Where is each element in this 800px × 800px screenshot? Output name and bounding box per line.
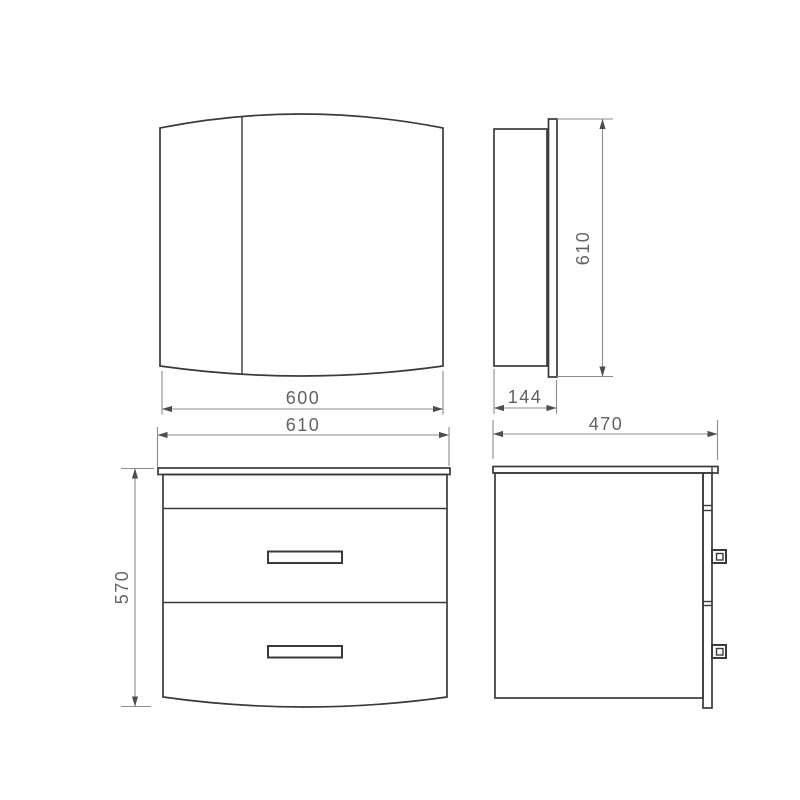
vanity-front-body	[163, 475, 447, 708]
arrowhead-up	[599, 119, 605, 129]
mirror-side-body	[494, 129, 547, 366]
dim-label-mirror-depth: 144	[508, 387, 543, 407]
vanity-front-countertop	[158, 468, 450, 475]
dimension-vanity-depth: 470	[493, 414, 718, 460]
mirror-front-view	[160, 114, 443, 376]
vanity-side-body	[495, 473, 703, 698]
arrowhead-left	[493, 431, 503, 437]
arrowhead-right	[433, 406, 443, 412]
vanity-front-view	[158, 468, 450, 707]
arrowhead-down	[132, 697, 138, 707]
mirror-side-door-panel	[549, 119, 558, 377]
arrowhead-right	[439, 432, 449, 438]
drawer-handle-bottom-profile-inner	[717, 649, 724, 656]
mirror-side-view	[494, 119, 557, 377]
vanity-side-view	[493, 467, 726, 709]
dim-label-vanity-depth: 470	[589, 414, 624, 434]
dim-label-mirror-width: 600	[286, 388, 321, 408]
technical-drawing: 600 610 610 144	[0, 0, 800, 800]
arrowhead-up	[132, 469, 138, 479]
vanity-side-drawer-fronts	[703, 473, 712, 708]
dim-label-vanity-width: 610	[286, 415, 321, 435]
drawer-handle-top	[268, 552, 342, 564]
drawer-handle-bottom	[268, 646, 342, 658]
arrowhead-right	[547, 405, 557, 411]
dim-label-vanity-height: 570	[112, 570, 132, 605]
dimension-mirror-depth: 144	[494, 369, 557, 414]
drawer-handle-top-profile-inner	[717, 554, 724, 561]
dimension-vanity-width: 610	[158, 415, 450, 467]
arrowhead-left	[158, 432, 168, 438]
drawing-canvas: 600 610 610 144	[0, 0, 800, 800]
arrowhead-left	[162, 406, 172, 412]
dim-label-mirror-height: 610	[573, 231, 593, 266]
dimension-mirror-width: 600	[162, 371, 443, 415]
dimension-vanity-height: 570	[112, 469, 154, 707]
arrowhead-down	[599, 367, 605, 377]
mirror-front-outline	[160, 114, 443, 376]
arrowhead-right	[708, 431, 718, 437]
dimension-mirror-height: 610	[557, 119, 613, 377]
vanity-side-countertop	[493, 467, 718, 474]
arrowhead-left	[494, 405, 504, 411]
